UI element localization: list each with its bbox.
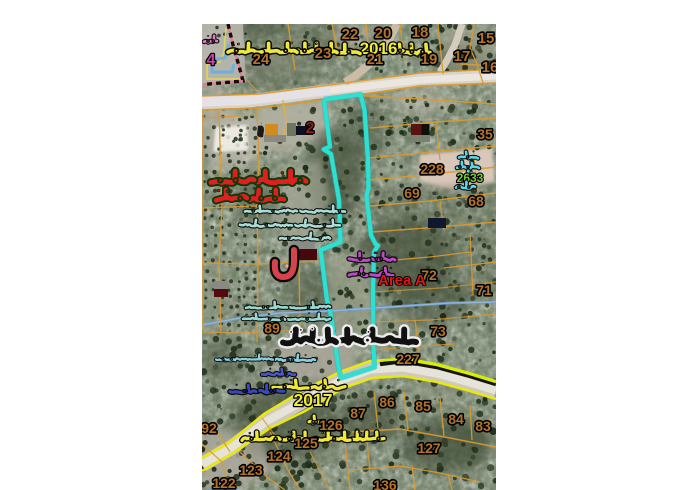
svg-text:228: 228 — [420, 161, 444, 177]
svg-text:122: 122 — [212, 475, 236, 490]
svg-text:127: 127 — [417, 440, 441, 456]
svg-text:227: 227 — [396, 351, 420, 367]
svg-text:126: 126 — [319, 417, 343, 433]
svg-text:92: 92 — [201, 420, 217, 436]
svg-text:73: 73 — [430, 323, 446, 339]
svg-text:16: 16 — [482, 59, 499, 76]
svg-text:124: 124 — [267, 448, 291, 464]
svg-text:84: 84 — [448, 411, 464, 427]
svg-text:19: 19 — [421, 51, 438, 68]
svg-text:83: 83 — [475, 418, 491, 434]
svg-text:15: 15 — [478, 30, 495, 47]
svg-text:136: 136 — [373, 477, 397, 490]
svg-text:35: 35 — [477, 126, 493, 142]
svg-text:22: 22 — [342, 26, 359, 43]
svg-text:125: 125 — [294, 435, 318, 451]
svg-text:71: 71 — [476, 282, 492, 298]
svg-text:85: 85 — [415, 398, 431, 414]
svg-text:2017: 2017 — [294, 390, 333, 410]
svg-text:123: 123 — [239, 462, 263, 478]
svg-text:21: 21 — [367, 51, 384, 68]
svg-text:4: 4 — [207, 52, 216, 69]
svg-text:23: 23 — [315, 45, 332, 62]
svg-text:Area A: Area A — [378, 272, 426, 289]
svg-text:24: 24 — [253, 51, 270, 68]
svg-text:87: 87 — [350, 405, 366, 421]
svg-text:86: 86 — [379, 394, 395, 410]
svg-text:17: 17 — [454, 48, 471, 65]
svg-text:68: 68 — [468, 193, 484, 209]
svg-text:20: 20 — [375, 25, 392, 42]
svg-text:18: 18 — [412, 24, 429, 41]
svg-text:69: 69 — [404, 185, 420, 201]
svg-text:2: 2 — [306, 120, 315, 137]
svg-text:89: 89 — [264, 320, 280, 336]
svg-text:2633: 2633 — [457, 171, 484, 185]
